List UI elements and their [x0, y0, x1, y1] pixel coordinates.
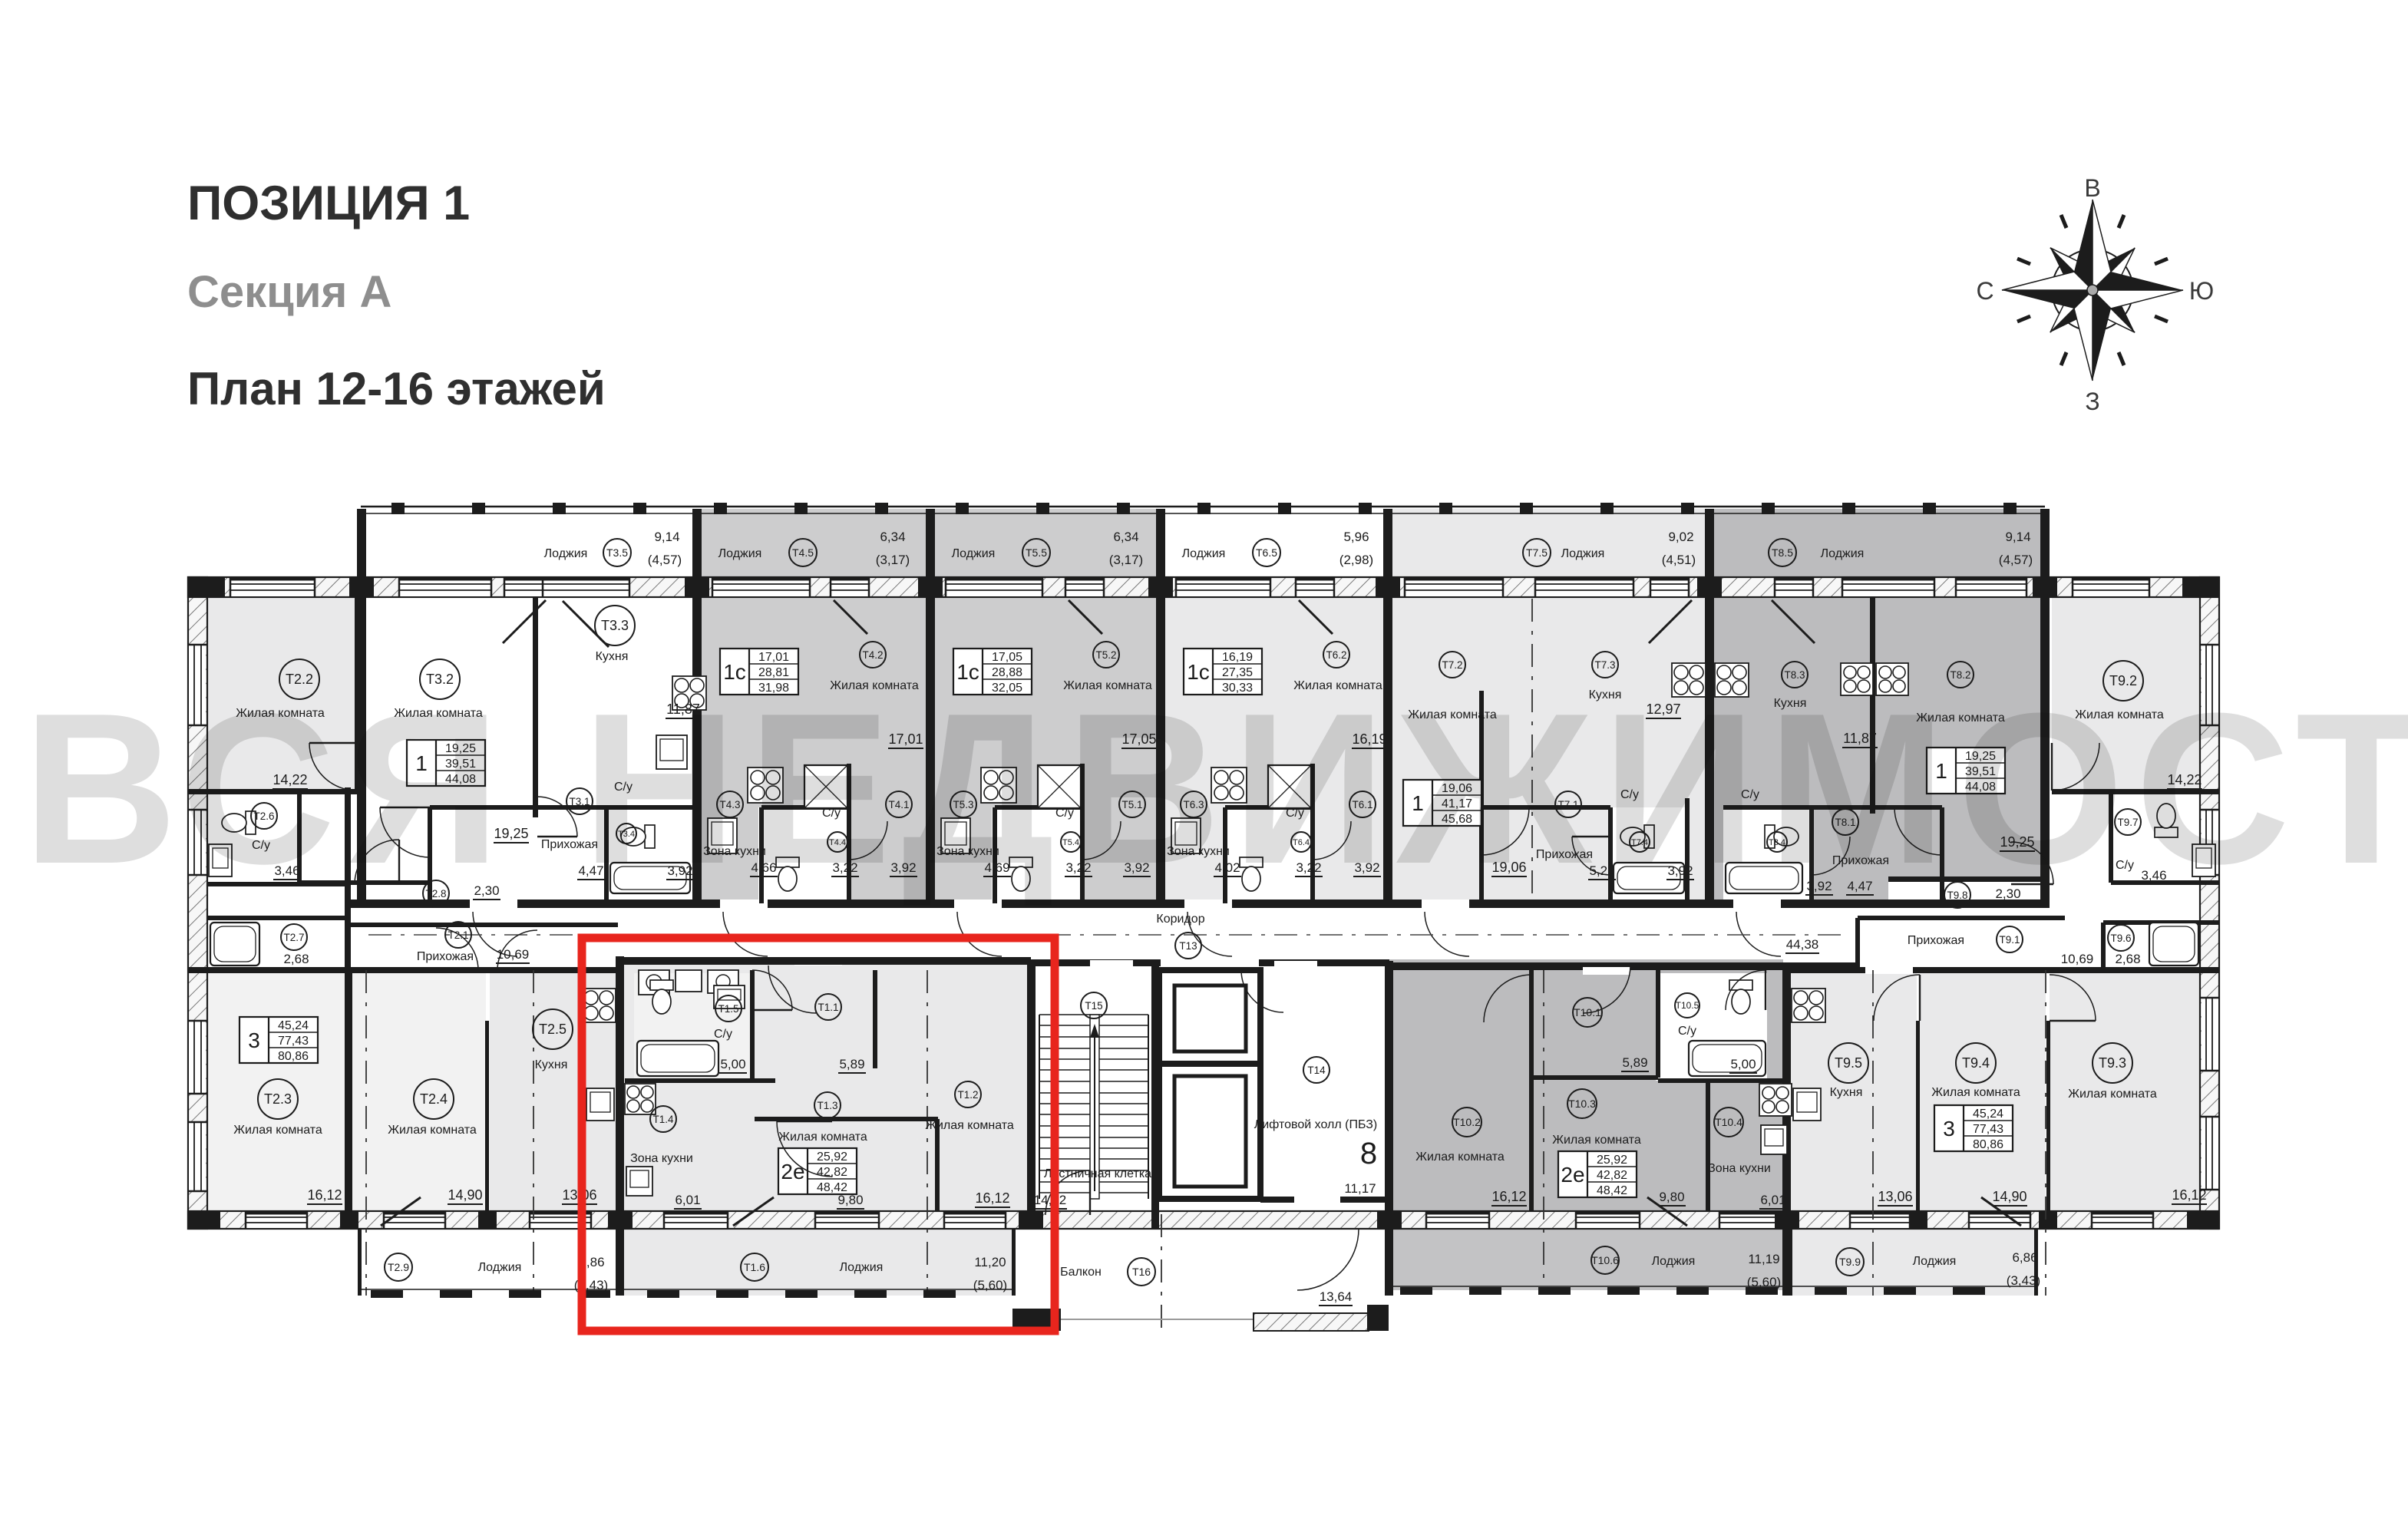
svg-text:Кухня: Кухня	[596, 650, 629, 663]
svg-text:(5,60): (5,60)	[973, 1278, 1007, 1292]
svg-text:Т9.6: Т9.6	[2110, 933, 2131, 944]
svg-text:Жилая комната: Жилая комната	[1415, 1150, 1505, 1164]
svg-text:Кухня: Кухня	[535, 1058, 568, 1071]
svg-text:Кухня: Кухня	[1830, 1086, 1863, 1099]
svg-text:Т7.5: Т7.5	[1526, 546, 1548, 559]
svg-text:Т3.5: Т3.5	[606, 546, 628, 559]
svg-text:45,24: 45,24	[1973, 1108, 2003, 1121]
svg-text:Т9.5: Т9.5	[1835, 1055, 1862, 1071]
svg-text:Т8.5: Т8.5	[1772, 546, 1793, 559]
svg-text:Т15: Т15	[1085, 1000, 1102, 1012]
svg-text:Т2.5: Т2.5	[539, 1022, 566, 1037]
svg-text:14,90: 14,90	[1992, 1189, 2026, 1204]
svg-text:5,89: 5,89	[839, 1057, 864, 1071]
svg-text:11,17: 11,17	[1344, 1181, 1376, 1196]
svg-text:(3,17): (3,17)	[876, 553, 910, 567]
svg-text:Жилая комната: Жилая комната	[1931, 1086, 2020, 1099]
svg-text:Лоджия: Лоджия	[1821, 547, 1865, 560]
svg-text:Зона кухни: Зона кухни	[1708, 1162, 1771, 1175]
svg-text:Т10.3: Т10.3	[1568, 1098, 1596, 1110]
svg-text:42,82: 42,82	[817, 1166, 847, 1179]
svg-text:Т2.7: Т2.7	[283, 932, 304, 943]
svg-text:Т2.4: Т2.4	[420, 1091, 448, 1107]
svg-text:Жилая комната: Жилая комната	[233, 1124, 322, 1137]
svg-text:25,92: 25,92	[1597, 1154, 1627, 1167]
svg-text:(4,51): (4,51)	[1662, 553, 1696, 567]
svg-text:16,12: 16,12	[1491, 1189, 1526, 1204]
svg-text:Т10.2: Т10.2	[1453, 1116, 1481, 1128]
svg-text:6,34: 6,34	[880, 530, 905, 544]
svg-text:Т1.2: Т1.2	[957, 1089, 978, 1101]
svg-text:Коридор: Коридор	[1156, 913, 1204, 926]
svg-text:Т1.1: Т1.1	[818, 1002, 838, 1013]
svg-text:9,14: 9,14	[2005, 530, 2030, 544]
svg-text:9,14: 9,14	[654, 530, 679, 544]
svg-text:Зона кухни: Зона кухни	[630, 1152, 693, 1165]
svg-text:Т9.3: Т9.3	[2099, 1055, 2126, 1071]
svg-text:2,68: 2,68	[283, 952, 309, 966]
svg-text:2,68: 2,68	[2115, 952, 2140, 966]
svg-text:Т6.5: Т6.5	[1256, 546, 1277, 559]
svg-text:(2,98): (2,98)	[1339, 553, 1373, 567]
svg-text:9,02: 9,02	[1668, 530, 1693, 544]
svg-text:Жилая комната: Жилая комната	[388, 1124, 477, 1137]
svg-text:5,00: 5,00	[720, 1057, 745, 1071]
svg-text:С/у: С/у	[1678, 1025, 1696, 1038]
svg-text:6,01: 6,01	[675, 1193, 700, 1207]
svg-text:Т6.2: Т6.2	[1326, 649, 1346, 661]
svg-text:5,89: 5,89	[1622, 1055, 1647, 1070]
svg-text:Т10.4: Т10.4	[1715, 1116, 1742, 1128]
svg-text:С/у: С/у	[714, 1028, 732, 1041]
svg-text:45,24: 45,24	[278, 1019, 309, 1032]
svg-text:Лоджия: Лоджия	[1182, 547, 1226, 560]
svg-text:Лоджия: Лоджия	[1652, 1255, 1696, 1268]
svg-text:ПОЗИЦИЯ 1: ПОЗИЦИЯ 1	[187, 177, 470, 230]
svg-text:Т10.5: Т10.5	[1676, 1000, 1699, 1011]
svg-text:Лоджия: Лоджия	[952, 547, 996, 560]
svg-text:Т9.9: Т9.9	[1839, 1256, 1861, 1268]
svg-text:Лестничная клетка: Лестничная клетка	[1044, 1167, 1151, 1180]
svg-text:13,64: 13,64	[1320, 1289, 1353, 1304]
svg-text:Т4.5: Т4.5	[792, 546, 814, 559]
svg-text:Т10.6: Т10.6	[1591, 1254, 1619, 1266]
svg-text:(3,17): (3,17)	[1109, 553, 1143, 567]
svg-text:Жилая комната: Жилая комната	[2068, 1088, 2157, 1101]
svg-text:С: С	[1976, 277, 1993, 305]
svg-text:16,12: 16,12	[975, 1190, 1009, 1206]
svg-text:17,05: 17,05	[992, 651, 1022, 664]
svg-text:77,43: 77,43	[1973, 1123, 2003, 1136]
svg-text:16,12: 16,12	[307, 1187, 342, 1203]
svg-text:42,82: 42,82	[1597, 1169, 1627, 1182]
svg-text:Лоджия: Лоджия	[478, 1261, 522, 1274]
svg-text:(4,57): (4,57)	[648, 553, 682, 567]
svg-text:80,86: 80,86	[278, 1050, 309, 1063]
svg-text:3: 3	[1943, 1117, 1955, 1141]
svg-text:Т13: Т13	[1179, 940, 1197, 952]
svg-text:Жилая комната: Жилая комната	[778, 1131, 867, 1144]
svg-text:План 12-16 этажей: План 12-16 этажей	[187, 363, 606, 414]
svg-text:Т1.4: Т1.4	[652, 1114, 674, 1125]
svg-text:6,01: 6,01	[1760, 1193, 1785, 1207]
svg-text:Прихожая: Прихожая	[417, 950, 474, 963]
svg-text:48,42: 48,42	[1597, 1184, 1627, 1197]
svg-text:Т1.5: Т1.5	[718, 1003, 738, 1015]
svg-text:2е: 2е	[1561, 1163, 1584, 1187]
svg-text:Т1.3: Т1.3	[817, 1100, 837, 1111]
svg-text:Прихожая: Прихожая	[1908, 934, 1964, 947]
svg-text:11,20: 11,20	[974, 1255, 1006, 1269]
svg-text:Т5.5: Т5.5	[1026, 546, 1047, 559]
svg-text:9,80: 9,80	[1659, 1190, 1684, 1204]
svg-text:10,69: 10,69	[497, 947, 530, 962]
svg-text:В: В	[2084, 174, 2100, 202]
svg-text:Т4.2: Т4.2	[862, 649, 883, 661]
svg-text:Лоджия: Лоджия	[544, 547, 588, 560]
svg-text:2е: 2е	[781, 1160, 804, 1183]
svg-text:Т3.3: Т3.3	[601, 618, 629, 633]
svg-text:16,12: 16,12	[2172, 1187, 2206, 1203]
svg-text:Жилая комната: Жилая комната	[1552, 1134, 1641, 1147]
svg-text:10,69: 10,69	[2061, 952, 2094, 966]
svg-text:Т5.2: Т5.2	[1095, 649, 1116, 661]
svg-text:Лоджия: Лоджия	[840, 1261, 884, 1274]
svg-text:80,86: 80,86	[1973, 1138, 2003, 1151]
svg-text:Т9.1: Т9.1	[1999, 934, 2020, 946]
svg-text:Лифтовой холл (ПБЗ): Лифтовой холл (ПБЗ)	[1254, 1118, 1378, 1131]
svg-text:6,34: 6,34	[1113, 530, 1138, 544]
svg-text:Балкон: Балкон	[1060, 1266, 1102, 1279]
svg-text:16,19: 16,19	[1222, 651, 1253, 664]
svg-text:11,19: 11,19	[1748, 1252, 1779, 1266]
svg-text:3: 3	[248, 1028, 260, 1052]
svg-text:44,38: 44,38	[1786, 937, 1819, 952]
svg-text:Т2.9: Т2.9	[388, 1261, 409, 1273]
svg-text:25,92: 25,92	[817, 1150, 847, 1164]
svg-text:8: 8	[1360, 1137, 1377, 1170]
svg-text:13,06: 13,06	[1878, 1189, 1912, 1204]
svg-text:Секция А: Секция А	[187, 267, 391, 317]
svg-text:Т14: Т14	[1307, 1065, 1326, 1076]
svg-text:14,90: 14,90	[448, 1187, 482, 1203]
svg-text:5,96: 5,96	[1343, 530, 1369, 544]
svg-text:9,80: 9,80	[837, 1193, 863, 1207]
svg-text:Лоджия: Лоджия	[1913, 1255, 1957, 1268]
svg-text:Т16: Т16	[1132, 1266, 1151, 1278]
svg-text:17,01: 17,01	[758, 651, 789, 664]
svg-text:(4,57): (4,57)	[1999, 553, 2033, 567]
svg-text:6,86: 6,86	[2012, 1250, 2037, 1265]
svg-text:З: З	[2085, 388, 2099, 415]
svg-text:Т1.6: Т1.6	[744, 1261, 765, 1273]
svg-text:Т2.3: Т2.3	[264, 1091, 292, 1107]
svg-text:Лоджия: Лоджия	[718, 547, 762, 560]
svg-text:Ю: Ю	[2189, 277, 2214, 305]
svg-text:77,43: 77,43	[278, 1035, 309, 1048]
svg-text:ВСЯ НЕДВИЖИМОСТЬ: ВСЯ НЕДВИЖИМОСТЬ	[22, 669, 2408, 909]
svg-text:Лоджия: Лоджия	[1561, 547, 1605, 560]
svg-text:Жилая комната: Жилая комната	[925, 1119, 1014, 1132]
svg-text:Т9.4: Т9.4	[1962, 1055, 1990, 1071]
svg-text:5,00: 5,00	[1730, 1057, 1756, 1071]
